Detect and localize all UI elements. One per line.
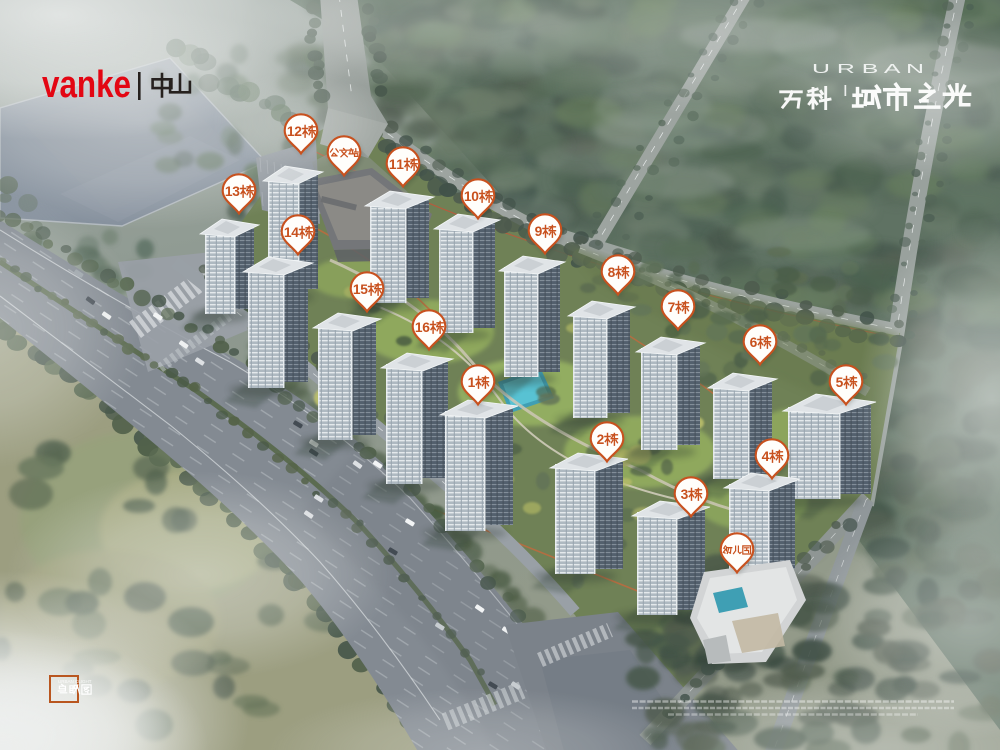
svg-text:1: 1: [468, 375, 476, 390]
svg-text:10: 10: [464, 189, 479, 204]
svg-text:vanke: vanke: [42, 64, 131, 106]
svg-text:3: 3: [681, 487, 689, 502]
svg-text:8: 8: [608, 265, 616, 280]
svg-text:6: 6: [750, 335, 758, 350]
svg-text:9: 9: [535, 224, 543, 239]
svg-text:5: 5: [836, 375, 844, 390]
svg-text:4: 4: [762, 449, 770, 464]
svg-text:13: 13: [225, 184, 240, 199]
svg-text:12: 12: [287, 124, 302, 139]
svg-text:14: 14: [284, 225, 299, 240]
svg-text:7: 7: [668, 300, 676, 315]
svg-text:11: 11: [389, 157, 404, 172]
svg-text:URBAN CLIGHT: URBAN CLIGHT: [58, 679, 92, 684]
svg-text:U R B A N: U R B A N: [812, 61, 924, 76]
svg-text:2: 2: [597, 432, 605, 447]
svg-text:15: 15: [353, 282, 368, 297]
svg-text:16: 16: [415, 320, 430, 335]
